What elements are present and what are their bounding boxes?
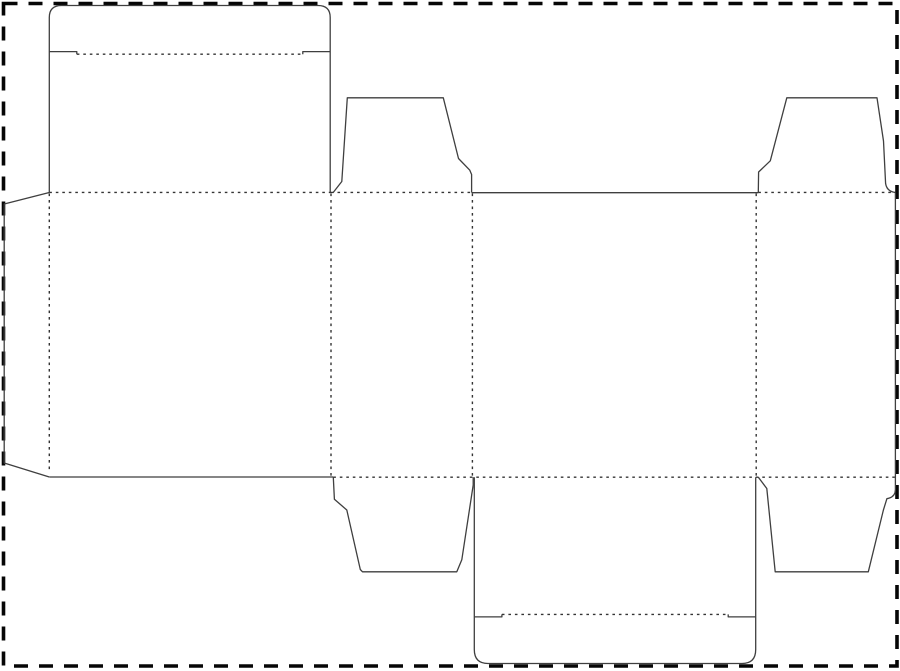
bottom-lid-slit-right	[728, 614, 756, 617]
top-lid-slit-left	[49, 52, 77, 55]
dust-flap-bottom-left-outline	[333, 477, 473, 572]
bottom-lid-slit-left	[474, 614, 502, 617]
dieline-canvas	[0, 0, 900, 671]
top-tuck-lid-outline	[49, 6, 330, 193]
bottom-tuck-lid-outline	[474, 477, 755, 663]
sheet-border	[4, 4, 898, 667]
dieline-sheet	[0, 0, 900, 671]
glue-flap-outline	[4, 193, 49, 478]
dust-flap-top-left-outline	[333, 98, 471, 193]
right-edge-and-dust-flap-bottom-right-outline	[758, 193, 895, 572]
top-lid-slit-right	[303, 52, 330, 55]
dust-flap-top-right-outline	[758, 98, 895, 193]
